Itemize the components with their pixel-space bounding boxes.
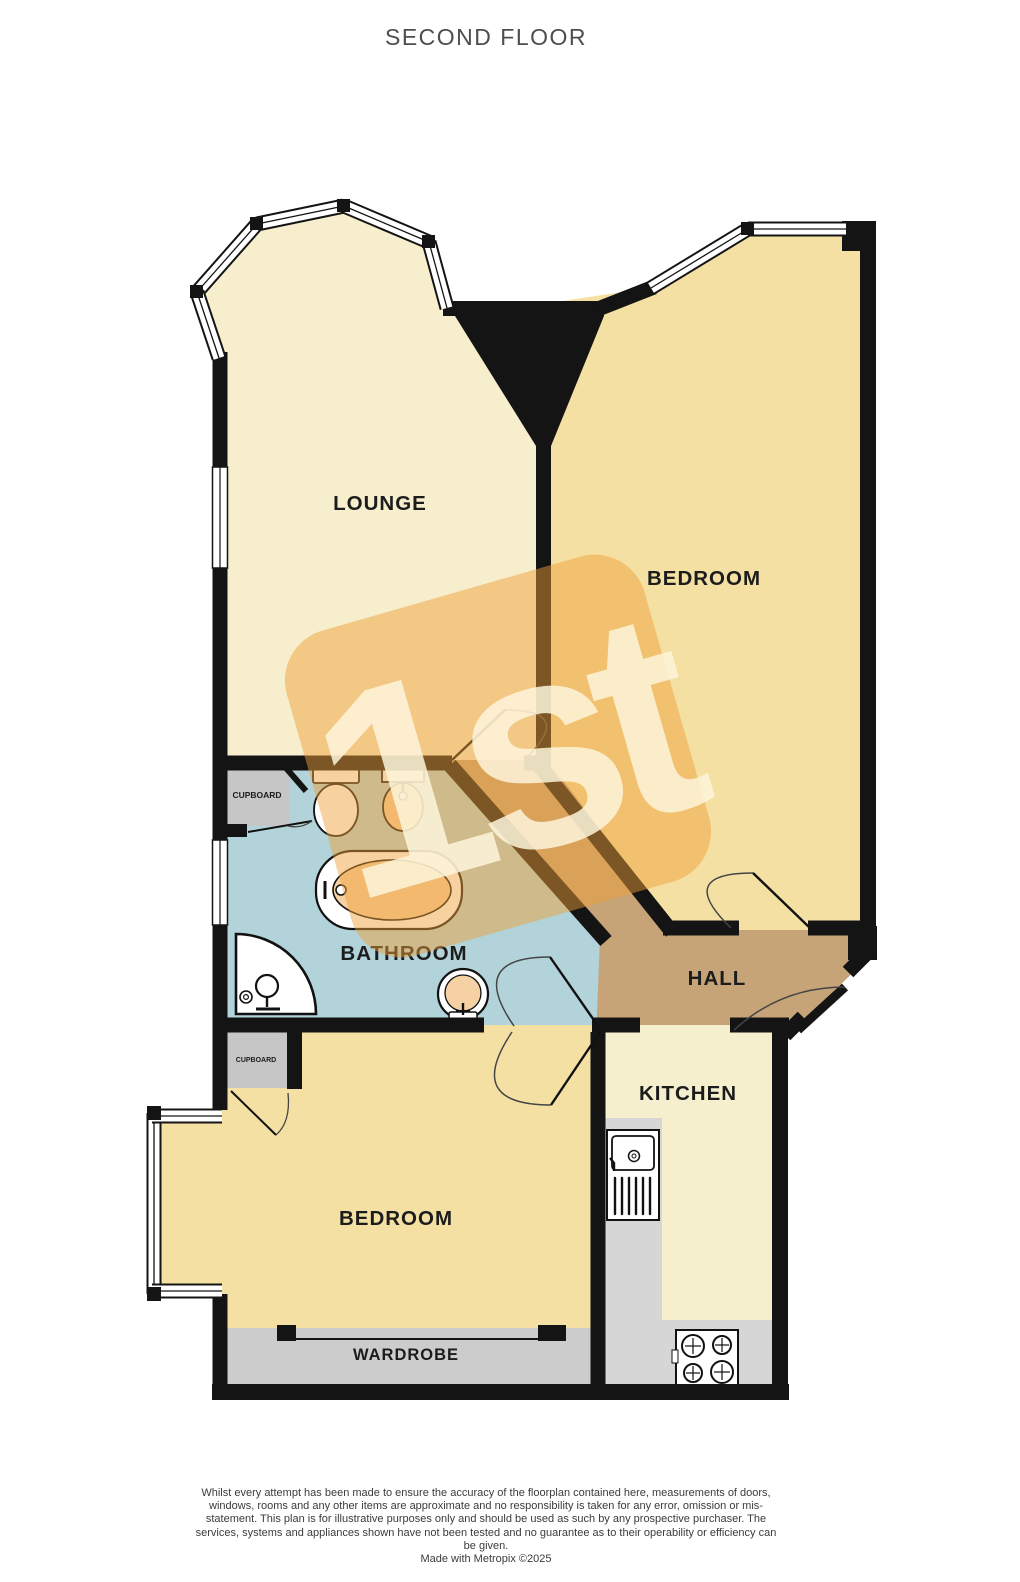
- toilet-icon: [313, 766, 359, 836]
- bedroom1-label: BEDROOM: [647, 567, 761, 590]
- hob-icon: [672, 1330, 738, 1388]
- floorplan-page: SECOND FLOOR: [0, 0, 1020, 1582]
- footer: Whilst every attempt has been made to en…: [0, 1487, 972, 1566]
- pedestal-basin-icon: [438, 969, 488, 1020]
- floorplan-drawing: LOUNGE BEDROOM BATHROOM HALL KITCHEN BED…: [0, 0, 1020, 1460]
- lounge-label: LOUNGE: [333, 492, 427, 515]
- lounge-floor: [196, 205, 545, 770]
- hall-label: HALL: [688, 967, 747, 990]
- bathroom-label: BATHROOM: [340, 942, 467, 965]
- cupboard1-stub: [221, 824, 247, 837]
- wardrobe-label: WARDROBE: [353, 1346, 459, 1364]
- bedroom2-bay-floor: [150, 1110, 228, 1298]
- cupboard2-label: CUPBOARD: [236, 1057, 276, 1064]
- credit-text: Made with Metropix ©2025: [194, 1553, 778, 1566]
- kitchen-label: KITCHEN: [639, 1082, 737, 1105]
- basin-icon: [382, 766, 424, 831]
- lounge-west-window: [213, 467, 228, 568]
- bath-icon: [316, 851, 462, 929]
- bathroom-west-window: [213, 840, 228, 925]
- bedroom2-label: BEDROOM: [339, 1207, 453, 1230]
- disclaimer-text: Whilst every attempt has been made to en…: [194, 1487, 778, 1553]
- sink-drainer-icon: [607, 1130, 659, 1220]
- cupboard1-label: CUPBOARD: [232, 790, 281, 800]
- cupboard2-stub: [287, 1031, 302, 1089]
